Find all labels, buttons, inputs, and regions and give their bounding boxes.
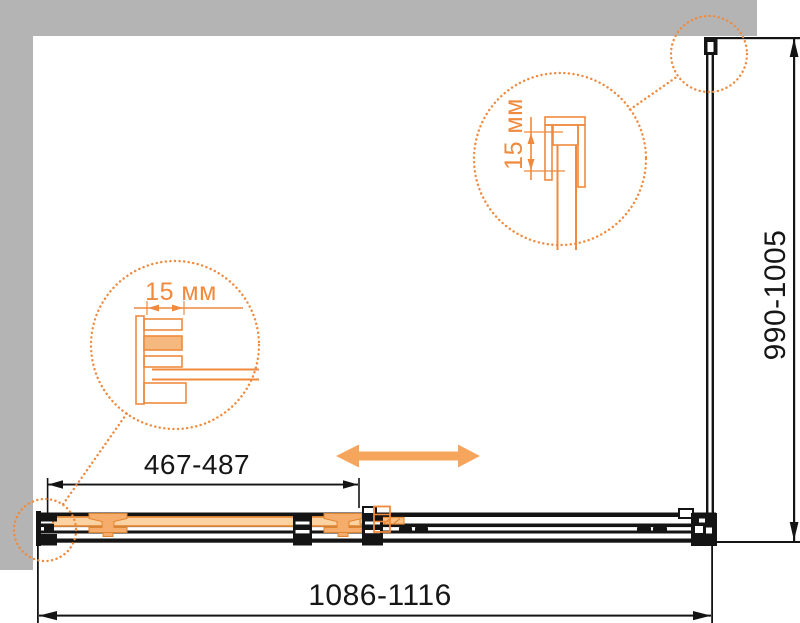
right-wall-profile — [704, 37, 718, 513]
wall-profile-section-right — [524, 117, 585, 250]
wall-profile-section-left — [134, 301, 259, 404]
profile-detail-label-right: 15 мм — [499, 89, 529, 179]
arrowhead-left — [39, 611, 57, 620]
slide-direction-arrow-icon — [336, 445, 480, 468]
drawing-layer — [0, 0, 800, 623]
height-dimension-label: 990-1005 — [759, 215, 793, 375]
callout-connector — [630, 76, 678, 110]
technical-drawing-canvas: 467-487 1086-1116 990-1005 15 мм 15 мм — [0, 0, 800, 623]
arrowhead-right — [343, 480, 358, 488]
overall-width-dimension-label: 1086-1116 — [280, 580, 480, 612]
door-width-dimension — [47, 478, 360, 514]
bottom-track-assembly — [36, 507, 717, 547]
left-wall-bracket — [36, 511, 57, 546]
panel-connector-mid — [293, 513, 312, 546]
door-width-dimension-label: 467-487 — [119, 449, 275, 481]
profile-detail-label-left: 15 мм — [136, 277, 226, 307]
arrowhead-down — [790, 522, 799, 541]
arrowhead-right — [693, 611, 711, 620]
arrowhead-left — [48, 480, 63, 488]
arrowhead-up — [790, 39, 799, 58]
callout-connector — [63, 414, 127, 505]
